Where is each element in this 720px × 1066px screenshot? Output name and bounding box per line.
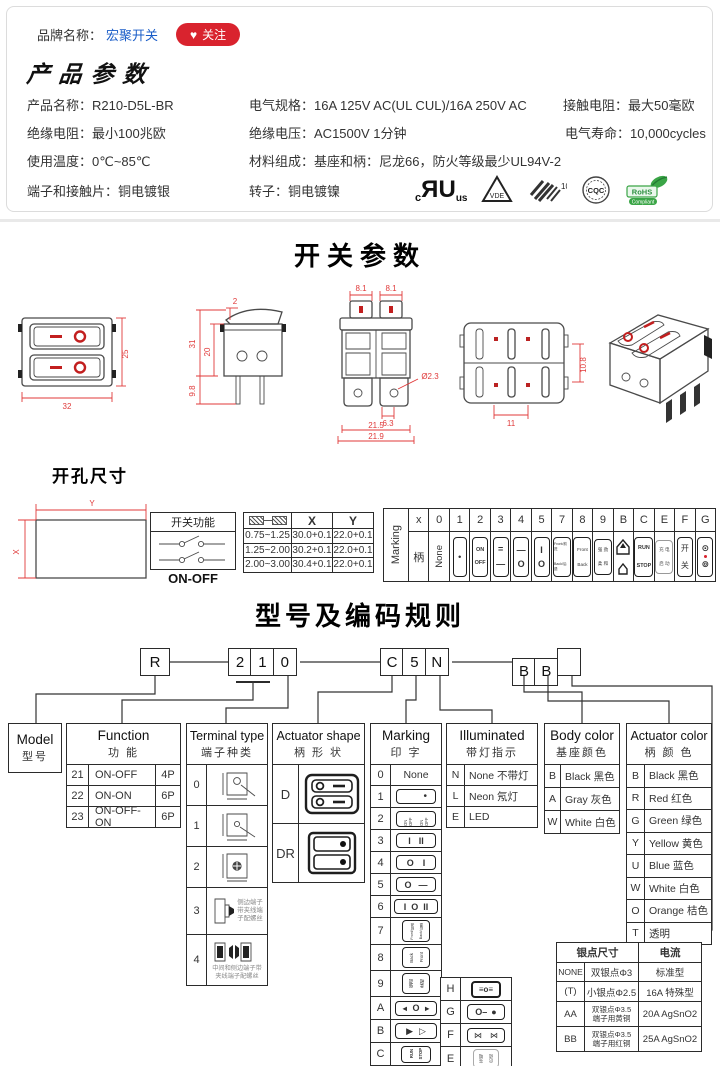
function-row: 23 ON-OFF-ON 6P <box>67 806 180 827</box>
svg-text:25: 25 <box>121 349 130 358</box>
actuator-color-row: G Green 绿色 <box>627 809 711 832</box>
col-terminal-type: Terminal type端子种类 0 1 2 <box>186 723 268 986</box>
svg-text:21.9: 21.9 <box>368 432 384 441</box>
current-header: 电流 <box>639 943 701 962</box>
marking-row-7: 7 Front/前进Back/后退 <box>371 917 441 944</box>
spec-electrical-rating: 电气规格：16A 125V AC(UL CUL)/16A 250V AC <box>249 95 527 114</box>
marking-col-4: 4 —O <box>511 509 531 581</box>
marking-row-2: 2 ON OFFON OFF <box>371 807 441 829</box>
perspective-view-drawing <box>592 295 718 431</box>
xy-dimension-table: X Y 0.75~1.25 30.0+0.1 22.0+0.1 1.25~2.0… <box>243 512 374 573</box>
switch-function-title: 开关功能 <box>151 513 235 532</box>
svg-text:9.8: 9.8 <box>188 385 197 397</box>
spec-product-name: 产品名称：R210-D5L-BR <box>27 95 174 114</box>
svg-text:Compliant: Compliant <box>632 200 655 206</box>
col-body-color: Body color基座颜色 B Black 黑色 A Gray 灰色 W Wh… <box>544 723 620 834</box>
svg-text:20: 20 <box>203 347 212 356</box>
silver-size-header: 银点尺寸 <box>557 943 639 962</box>
col-marking-right: H ≡o≡ G O–● F ⋈⋈ E 充电启动 <box>440 977 512 1066</box>
switch-params-title: 开关参数 <box>0 236 720 273</box>
terminal-drawing-1 <box>209 809 265 843</box>
body-color-row: W White 白色 <box>545 810 619 833</box>
function-row: 22 ON-ON 6P <box>67 785 180 806</box>
function-row: 21 ON-OFF 4P <box>67 765 180 785</box>
actuator-color-row: O Orange 桔色 <box>627 899 711 922</box>
on-off-label: ON-OFF <box>150 571 236 586</box>
col-actuator-color: Actuator color柄 颜 色 B Black 黑色 R Red 红色 … <box>626 723 712 945</box>
illuminated-row: E LED <box>447 806 537 827</box>
terminal-drawing-0 <box>209 768 265 802</box>
marking-row-6: 6 IOII <box>371 895 441 917</box>
marking-col-3: 3 =— <box>491 509 511 581</box>
terminal-row-3: 3 侧边端子 带夹线端 子配螺丝 <box>187 887 267 934</box>
switch-function-box: 开关功能 <box>150 512 236 570</box>
rohs-cert-icon: RoHS Compliant <box>625 173 671 207</box>
actuator-color-row: B Black 黑色 <box>627 765 711 787</box>
marking-col-5: 5 IO <box>532 509 552 581</box>
silver-row: AA 双银点Φ3.5端子用黄铜 20A AgSnO2 <box>557 1001 701 1026</box>
ul-cert-icon: cRUus <box>415 176 467 204</box>
body-color-row: B Black 黑色 <box>545 765 619 787</box>
svg-text:6.3: 6.3 <box>382 419 394 428</box>
cutout-drawing: Y X <box>8 492 158 590</box>
product-params-card: 品牌名称：宏聚开关 ♥ 关注 产品参数 产品名称：R210-D5L-BR 电气规… <box>6 6 713 212</box>
spec-contact-resistance: 接触电阻：最大50毫欧 <box>563 95 694 114</box>
svg-text:2: 2 <box>233 297 238 306</box>
shape-row-dr: DR <box>273 823 364 882</box>
xy-row: 1.25~2.00 30.2+0.1 22.0+0.1 <box>244 543 373 558</box>
spec-insulation-resistance: 绝缘电阻：最小100兆欧 <box>27 123 166 142</box>
spec-insulation-voltage: 绝缘电压：AC1500V 1分钟 <box>249 123 407 142</box>
marking-row-H: H ≡o≡ <box>441 978 511 1000</box>
svg-text:8.1: 8.1 <box>355 284 367 293</box>
svg-text:10: 10 <box>561 182 567 191</box>
marking-col-F: F 开关 <box>675 509 695 581</box>
actuator-color-row: R Red 红色 <box>627 787 711 810</box>
product-params-title: 产品参数 <box>25 55 157 89</box>
body-color-row: A Gray 灰色 <box>545 787 619 810</box>
marking-row-3: 3 III <box>371 829 441 851</box>
marking-col-1: 1 • <box>450 509 470 581</box>
shape-dr-icon <box>303 831 361 875</box>
svg-text:RoHS: RoHS <box>632 188 652 197</box>
marking-code-table: Marking x 柄 0 None 1 • 2 ONOFF 3 =— <box>383 508 716 582</box>
back-view-drawing: 10.8 11 <box>450 313 592 431</box>
follow-button-label: 关注 <box>202 26 226 43</box>
hole-size-title: 开孔尺寸 <box>52 462 128 487</box>
side-view-drawing: 31 20 2 9.8 <box>186 286 308 432</box>
svg-text:Ø2.3: Ø2.3 <box>421 372 439 381</box>
actuator-color-row: U Blue 蓝色 <box>627 854 711 877</box>
spec-terminal-plating: 端子和接触片：铜电镀银 <box>27 181 170 200</box>
terminal-row-2: 2 <box>187 846 267 887</box>
terminal-row-0: 0 <box>187 765 267 805</box>
marking-col-E: E 充 电启 动 <box>655 509 675 581</box>
brand-bar: 品牌名称：宏聚开关 ♥ 关注 <box>37 23 240 46</box>
svg-text:Y: Y <box>89 499 95 508</box>
spec-electrical-life: 电气寿命：10,000cycles <box>565 123 706 142</box>
terminal-drawing-4 <box>211 940 263 964</box>
svg-text:32: 32 <box>63 402 72 411</box>
actuator-color-row: T 透明 <box>627 922 711 945</box>
spec-rotor-plating: 转子：铜电镀镍 <box>249 181 340 200</box>
section-divider <box>0 219 720 222</box>
circuit-symbols <box>151 532 235 570</box>
vde-cert-icon: VDE <box>480 174 514 206</box>
svg-text:VDE: VDE <box>490 193 505 200</box>
marking-col-B: B <box>614 509 634 581</box>
col-marking: Marking印 字 0 None 1 • 2 ON OFFON OFF 3 I… <box>370 723 442 1066</box>
marking-col-8: 8 FrontBack <box>573 509 593 581</box>
marking-row-F: F ⋈⋈ <box>441 1023 511 1046</box>
spec-operating-temp: 使用温度：0℃~85℃ <box>27 151 151 170</box>
y-header: Y <box>333 513 373 528</box>
col-model: Model型号 <box>8 723 62 773</box>
silver-row: NONE 双银点Φ3 标准型 <box>557 962 701 981</box>
brand-name-link[interactable]: 宏聚开关 <box>106 25 158 44</box>
follow-button[interactable]: ♥ 关注 <box>176 23 240 46</box>
panel-thickness-icon <box>244 513 292 528</box>
marking-col-G: G ⊙⊚ <box>696 509 715 581</box>
marking-row-B: B ▶▷ <box>371 1019 441 1042</box>
svg-text:11: 11 <box>507 419 516 428</box>
terminal-drawing-3 <box>211 893 235 929</box>
col-function: Function功 能 21 ON-OFF 4P 22 ON-ON 6P 23 … <box>66 723 181 828</box>
marking-col-C: C RUNSTOP <box>634 509 654 581</box>
silver-row: BB 双银点Φ3.5端子用红铜 25A AgSnO2 <box>557 1026 701 1051</box>
shape-row-d: D <box>273 765 364 823</box>
xy-row: 0.75~1.25 30.0+0.1 22.0+0.1 <box>244 528 373 543</box>
svg-text:31: 31 <box>188 339 197 348</box>
marking-col-2: 2 ONOFF <box>470 509 490 581</box>
certification-logos: cRUus VDE 10 CQC RoHS C <box>415 167 695 213</box>
svg-text:8.1: 8.1 <box>385 284 397 293</box>
terminal-row-4: 4 中间和侧边端子带 夹线端子配螺丝 <box>187 934 267 985</box>
marking-row-9: 9 强劲柔和 <box>371 970 441 996</box>
heart-icon: ♥ <box>190 29 197 41</box>
marking-row-G: G O–● <box>441 1000 511 1023</box>
top-view-drawing: 8.1 8.1 Ø2.3 6.3 21.5 21.9 <box>320 283 458 445</box>
illuminated-row: N None 不带灯 <box>447 765 537 785</box>
col-illuminated: Illuminated带灯指示 N None 不带灯 L Neon 氖灯 E L… <box>446 723 538 828</box>
svg-text:21.5: 21.5 <box>368 421 384 430</box>
x-header: X <box>292 513 333 528</box>
xy-row: 2.00~3.00 30.4+0.1 22.0+0.1 <box>244 557 373 572</box>
model-coding-title: 型号及编码规则 <box>0 596 720 633</box>
brand-label: 品牌名称： <box>37 25 102 44</box>
svg-text:X: X <box>12 549 21 555</box>
marking-side-label: Marking <box>390 525 402 564</box>
marking-row-8: 8 BackFront <box>371 944 441 970</box>
col-actuator-shape: Actuator shape柄 形 状 D DR <box>272 723 365 883</box>
svg-text:10.8: 10.8 <box>579 357 588 373</box>
marking-col-9: 9 强 劲柔 和 <box>593 509 613 581</box>
svg-text:CQC: CQC <box>588 186 605 195</box>
marking-row-4: 4 OI <box>371 851 441 873</box>
enec-cert-icon: 10 <box>527 175 567 205</box>
terminal-row-1: 1 <box>187 805 267 846</box>
silver-row: (T) 小银点Φ2.5 16A 特殊型 <box>557 981 701 1001</box>
marking-row-C: C RUNSTOP <box>371 1042 441 1065</box>
vent-icon <box>615 537 631 577</box>
marking-row-1: 1 • <box>371 785 441 807</box>
product-page: 品牌名称：宏聚开关 ♥ 关注 产品参数 产品名称：R210-D5L-BR 电气规… <box>0 0 720 1066</box>
marking-row-A: A ◄O► <box>371 996 441 1019</box>
marking-row-0: 0 None <box>371 765 441 785</box>
marking-col-0: 0 None <box>429 509 449 581</box>
marking-row-E: E 充电启动 <box>441 1046 511 1066</box>
silver-point-table: 银点尺寸 电流 NONE 双银点Φ3 标准型 (T) 小银点Φ2.5 16A 特… <box>556 942 702 1052</box>
shape-d-icon <box>303 772 361 816</box>
illuminated-row: L Neon 氖灯 <box>447 785 537 806</box>
marking-row-5: 5 O— <box>371 873 441 895</box>
cqc-cert-icon: CQC <box>580 174 612 206</box>
front-view-drawing: 32 25 <box>10 308 132 416</box>
terminal-drawing-2 <box>209 850 265 884</box>
actuator-color-row: Y Yellow 黄色 <box>627 832 711 855</box>
actuator-color-row: W White 白色 <box>627 877 711 900</box>
marking-col-7: 7 Front/前进Back/后退 <box>552 509 572 581</box>
